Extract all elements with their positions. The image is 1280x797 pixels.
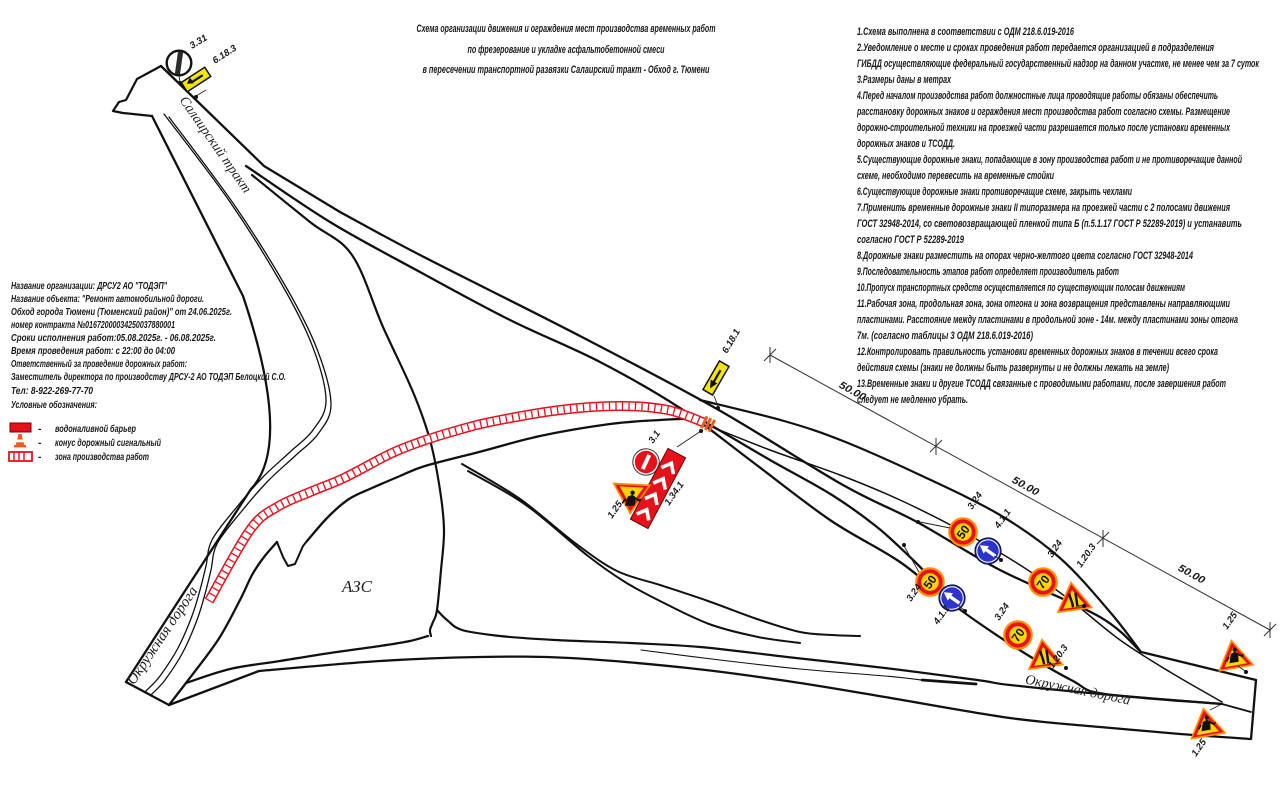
svg-text:Сроки исполнения работ:05.08.2: Сроки исполнения работ:05.08.2025г. - 06…	[11, 332, 216, 344]
svg-text:5.Существующие дорожные знаки,: 5.Существующие дорожные знаки, попадающи…	[857, 154, 1242, 166]
svg-text:-: -	[38, 452, 42, 463]
svg-text:в пересечении транспортной раз: в пересечении транспортной развязки Сала…	[423, 64, 710, 76]
svg-text:пластинами. Расстояние между п: пластинами. Расстояние между пластинами …	[857, 314, 1238, 326]
svg-text:4.Перед началом производства р: 4.Перед началом производства работ должн…	[856, 90, 1218, 102]
svg-text:10.Пропуск транспортных средст: 10.Пропуск транспортных средств осуществ…	[857, 282, 1185, 294]
svg-text:9.Последовательность этапов ра: 9.Последовательность этапов работ опреде…	[857, 266, 1119, 278]
svg-text:11.Рабочая зона, продольная зо: 11.Рабочая зона, продольная зона, зона о…	[857, 298, 1230, 310]
svg-text:дорожно-строительной техники н: дорожно-строительной техники на проезжей…	[857, 122, 1231, 134]
svg-text:номер контракта №0167200003425: номер контракта №01672000034250037880001	[11, 320, 175, 331]
svg-text:Обход города Тюмени (Тюменский: Обход города Тюмени (Тюменский район)" о…	[11, 306, 232, 318]
svg-text:Условные обозначения:: Условные обозначения:	[11, 399, 97, 411]
svg-text:Тел: 8-922-269-77-70: Тел: 8-922-269-77-70	[11, 386, 93, 397]
svg-text:расстановку дорожных знаков и: расстановку дорожных знаков и ограждения…	[856, 106, 1230, 118]
svg-text:зона производства работ: зона производства работ	[55, 451, 149, 463]
svg-text:7м. (согласно таблицы 3 ОДМ 21: 7м. (согласно таблицы 3 ОДМ 218.6.019-20…	[857, 330, 1033, 342]
svg-text:АЗС: АЗС	[341, 577, 373, 596]
svg-text:Ответственный за проведение до: Ответственный за проведение дорожных раб…	[11, 358, 187, 370]
svg-text:Заместитель директора по произ: Заместитель директора по производству ДР…	[11, 372, 286, 383]
svg-text:8.Дорожные знаки разместить на: 8.Дорожные знаки разместить на опорах че…	[857, 250, 1193, 262]
svg-text:13.Временные знаки и другие ТС: 13.Временные знаки и другие ТСОДД связан…	[857, 378, 1226, 390]
svg-text:7.Применить временные дорожные: 7.Применить временные дорожные знаки II …	[857, 202, 1231, 214]
svg-text:действия схемы (знаки не должн: действия схемы (знаки не должны быть раз…	[857, 362, 1169, 374]
svg-text:3.Размеры даны в метрах: 3.Размеры даны в метрах	[857, 74, 952, 86]
svg-text:ГОСТ 32948-2014, со световозвр: ГОСТ 32948-2014, со световозвращающей пл…	[857, 218, 1242, 230]
svg-text:-: -	[38, 438, 42, 449]
svg-text:следует не медленно убрать.: следует не медленно убрать.	[857, 394, 968, 406]
svg-text:водоналивной барьер: водоналивной барьер	[55, 423, 136, 435]
svg-text:-: -	[38, 424, 42, 435]
svg-text:Название объекта: "Ремонт авто: Название объекта: "Ремонт автомобильной …	[11, 293, 204, 305]
svg-text:Схема организации движения и о: Схема организации движения и ограждения …	[417, 23, 716, 35]
svg-text:1.Схема выполнена в соответств: 1.Схема выполнена в соответствии с ОДМ 2…	[857, 26, 1074, 38]
svg-text:ГИБДД осуществляющие федеральн: ГИБДД осуществляющие федеральный государ…	[857, 58, 1259, 70]
svg-text:Название организации: ДРСУ2 АО: Название организации: ДРСУ2 АО "ТОДЭП"	[11, 281, 168, 292]
svg-text:12.Контролировать правильность: 12.Контролировать правильность установки…	[857, 346, 1218, 358]
svg-text:по фрезерование и укладке асфа: по фрезерование и укладке асфальтобетонн…	[468, 44, 665, 56]
svg-text:согласно ГОСТ Р 52289-2019: согласно ГОСТ Р 52289-2019	[857, 234, 964, 246]
svg-text:6.Существующие дорожные знаки: 6.Существующие дорожные знаки противореч…	[857, 186, 1132, 198]
svg-text:2.Уведомление о месте и сроках: 2.Уведомление о месте и сроках проведени…	[856, 42, 1214, 54]
svg-text:схеме, необходимо перевесить н: схеме, необходимо перевесить на временны…	[857, 170, 1054, 182]
svg-text:Время проведения работ: с 22:0: Время проведения работ: с 22:00 до 04:00	[11, 345, 175, 357]
svg-text:конус дорожный сигнальный: конус дорожный сигнальный	[55, 438, 161, 449]
svg-text:дорожных знаков и ТСОДД.: дорожных знаков и ТСОДД.	[857, 138, 955, 150]
